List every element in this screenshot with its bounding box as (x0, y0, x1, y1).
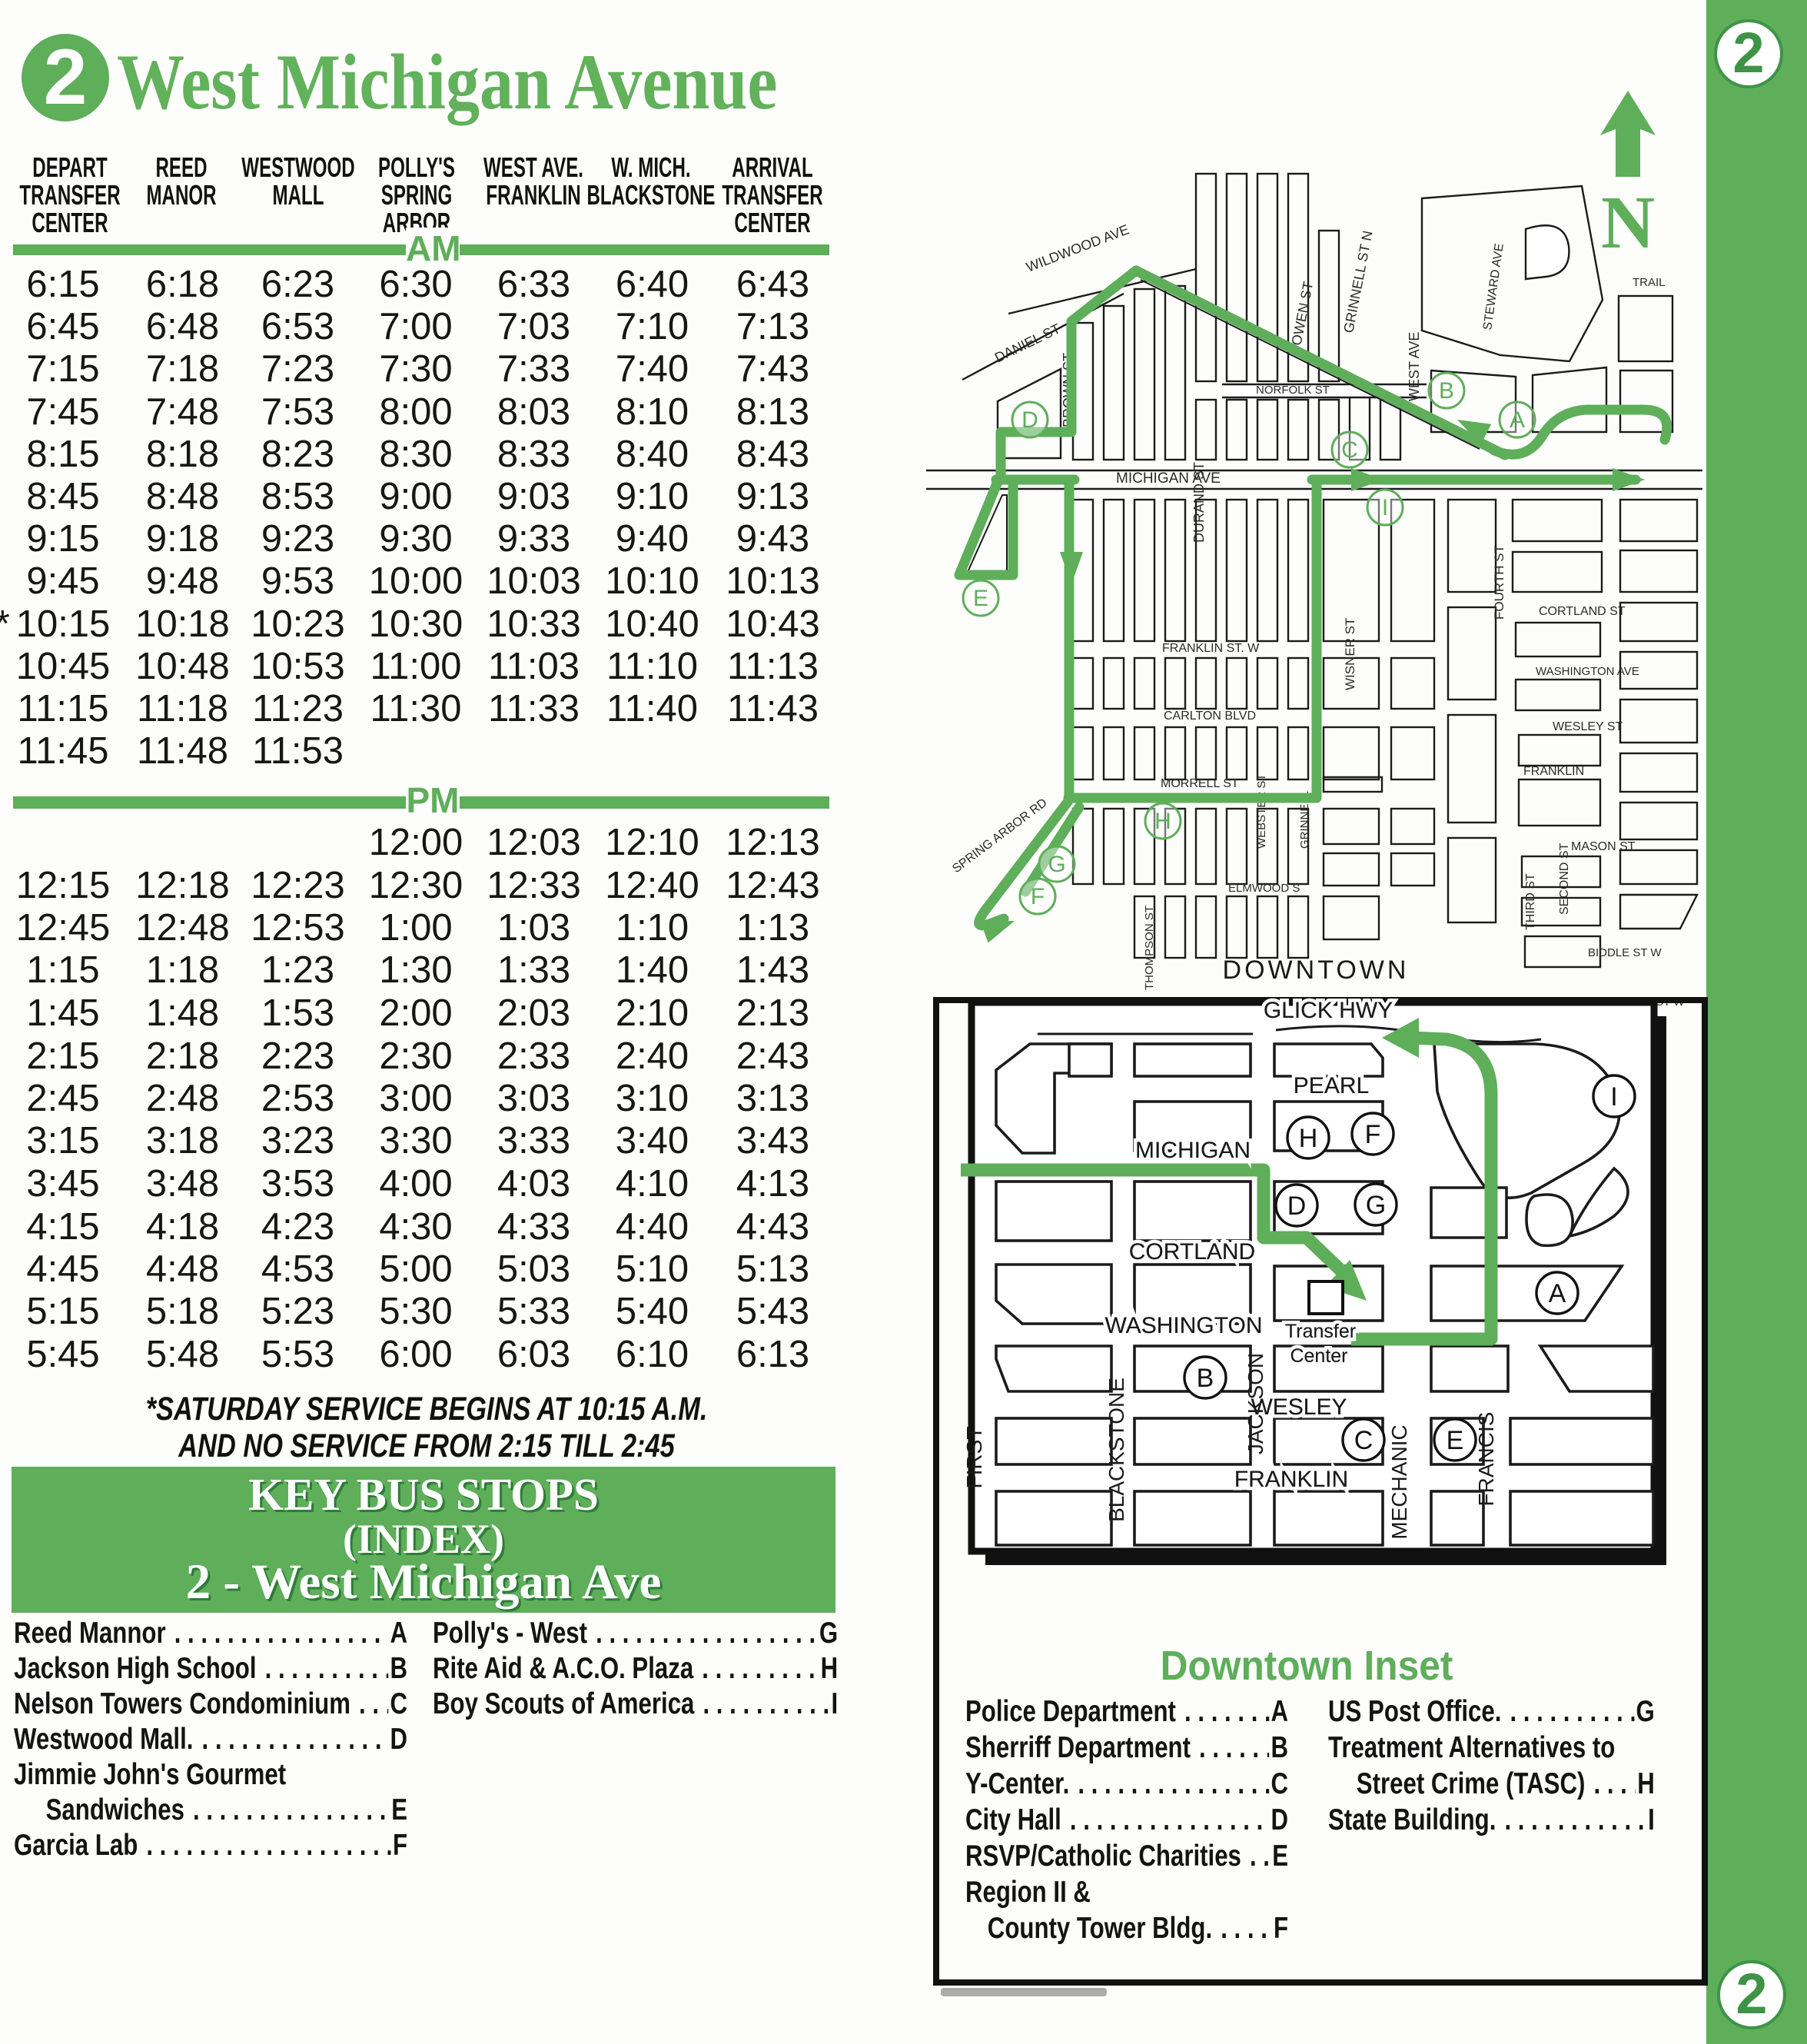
svg-text:G: G (1366, 1191, 1386, 1220)
svg-text:H: H (1154, 809, 1171, 834)
svg-text:D: D (1021, 407, 1038, 433)
svg-text:MORRELL ST: MORRELL ST (1161, 777, 1239, 790)
svg-text:C: C (1341, 437, 1358, 463)
svg-text:SPRING ARBOR RD: SPRING ARBOR RD (950, 796, 1050, 876)
svg-text:B: B (1439, 378, 1454, 404)
svg-text:FRANKLIN: FRANKLIN (1234, 1467, 1348, 1492)
svg-text:MICHIGAN AVE: MICHIGAN AVE (1116, 470, 1221, 487)
svg-text:FRANKLIN: FRANKLIN (1523, 765, 1584, 778)
svg-text:CORTLAND: CORTLAND (1129, 1239, 1255, 1265)
svg-text:TRAIL: TRAIL (1633, 276, 1666, 289)
svg-text:CORTLAND ST: CORTLAND ST (1539, 605, 1626, 618)
svg-text:THIRD ST: THIRD ST (1524, 873, 1537, 930)
svg-text:F: F (1365, 1120, 1381, 1149)
svg-text:CARLTON BLVD: CARLTON BLVD (1164, 710, 1256, 723)
svg-text:WILDWOOD AVE: WILDWOOD AVE (1024, 221, 1131, 274)
svg-text:C: C (1354, 1426, 1374, 1455)
svg-text:WEST AVE: WEST AVE (1407, 332, 1422, 401)
svg-text:FRANKLIN ST. W: FRANKLIN ST. W (1162, 642, 1260, 655)
svg-text:NORFOLK ST: NORFOLK ST (1256, 384, 1330, 397)
svg-text:SECOND ST: SECOND ST (1558, 843, 1571, 915)
svg-text:FOURTH ST: FOURTH ST (1492, 545, 1506, 620)
svg-text:E: E (1447, 1426, 1464, 1455)
svg-text:WASHINGTON AVE: WASHINGTON AVE (1536, 665, 1639, 678)
svg-text:DANIEL ST: DANIEL ST (992, 321, 1063, 365)
svg-text:WISNER ST: WISNER ST (1343, 618, 1357, 690)
svg-text:ELMWOOD S: ELMWOOD S (1228, 882, 1300, 895)
svg-text:A: A (1510, 407, 1525, 433)
svg-text:G: G (1048, 852, 1065, 877)
svg-text:B: B (1197, 1364, 1214, 1393)
svg-text:MICHIGAN: MICHIGAN (1135, 1138, 1251, 1163)
svg-text:WESLEY ST: WESLEY ST (1553, 720, 1623, 733)
svg-text:A: A (1549, 1279, 1566, 1308)
svg-text:MASON ST: MASON ST (1571, 840, 1636, 853)
svg-text:BLACKSTONE: BLACKSTONE (1104, 1378, 1128, 1522)
svg-text:MECHANIC: MECHANIC (1387, 1424, 1411, 1539)
svg-text:WASHINGTON: WASHINGTON (1104, 1313, 1262, 1338)
svg-text:GLICK HWY: GLICK HWY (1264, 998, 1393, 1023)
svg-text:BIDDLE ST W: BIDDLE ST W (1588, 946, 1662, 959)
svg-text:WEBSTER ST: WEBSTER ST (1255, 773, 1268, 849)
svg-text:Center: Center (1290, 1345, 1347, 1367)
svg-text:JACKSON: JACKSON (1244, 1353, 1267, 1454)
svg-text:D: D (1287, 1192, 1307, 1221)
svg-text:I: I (1382, 495, 1388, 520)
svg-text:PEARL: PEARL (1294, 1073, 1369, 1098)
svg-text:I: I (1610, 1082, 1617, 1112)
svg-text:FIRST: FIRST (962, 1427, 986, 1489)
svg-text:Transfer: Transfer (1285, 1321, 1356, 1342)
svg-text:H: H (1299, 1124, 1318, 1153)
svg-text:STEWARD AVE: STEWARD AVE (1481, 243, 1506, 331)
svg-text:E: E (973, 586, 988, 611)
svg-text:F: F (1031, 884, 1045, 909)
svg-text:GRINNELL ST N: GRINNELL ST N (1340, 229, 1375, 334)
svg-text:FRANCIS: FRANCIS (1474, 1412, 1498, 1507)
